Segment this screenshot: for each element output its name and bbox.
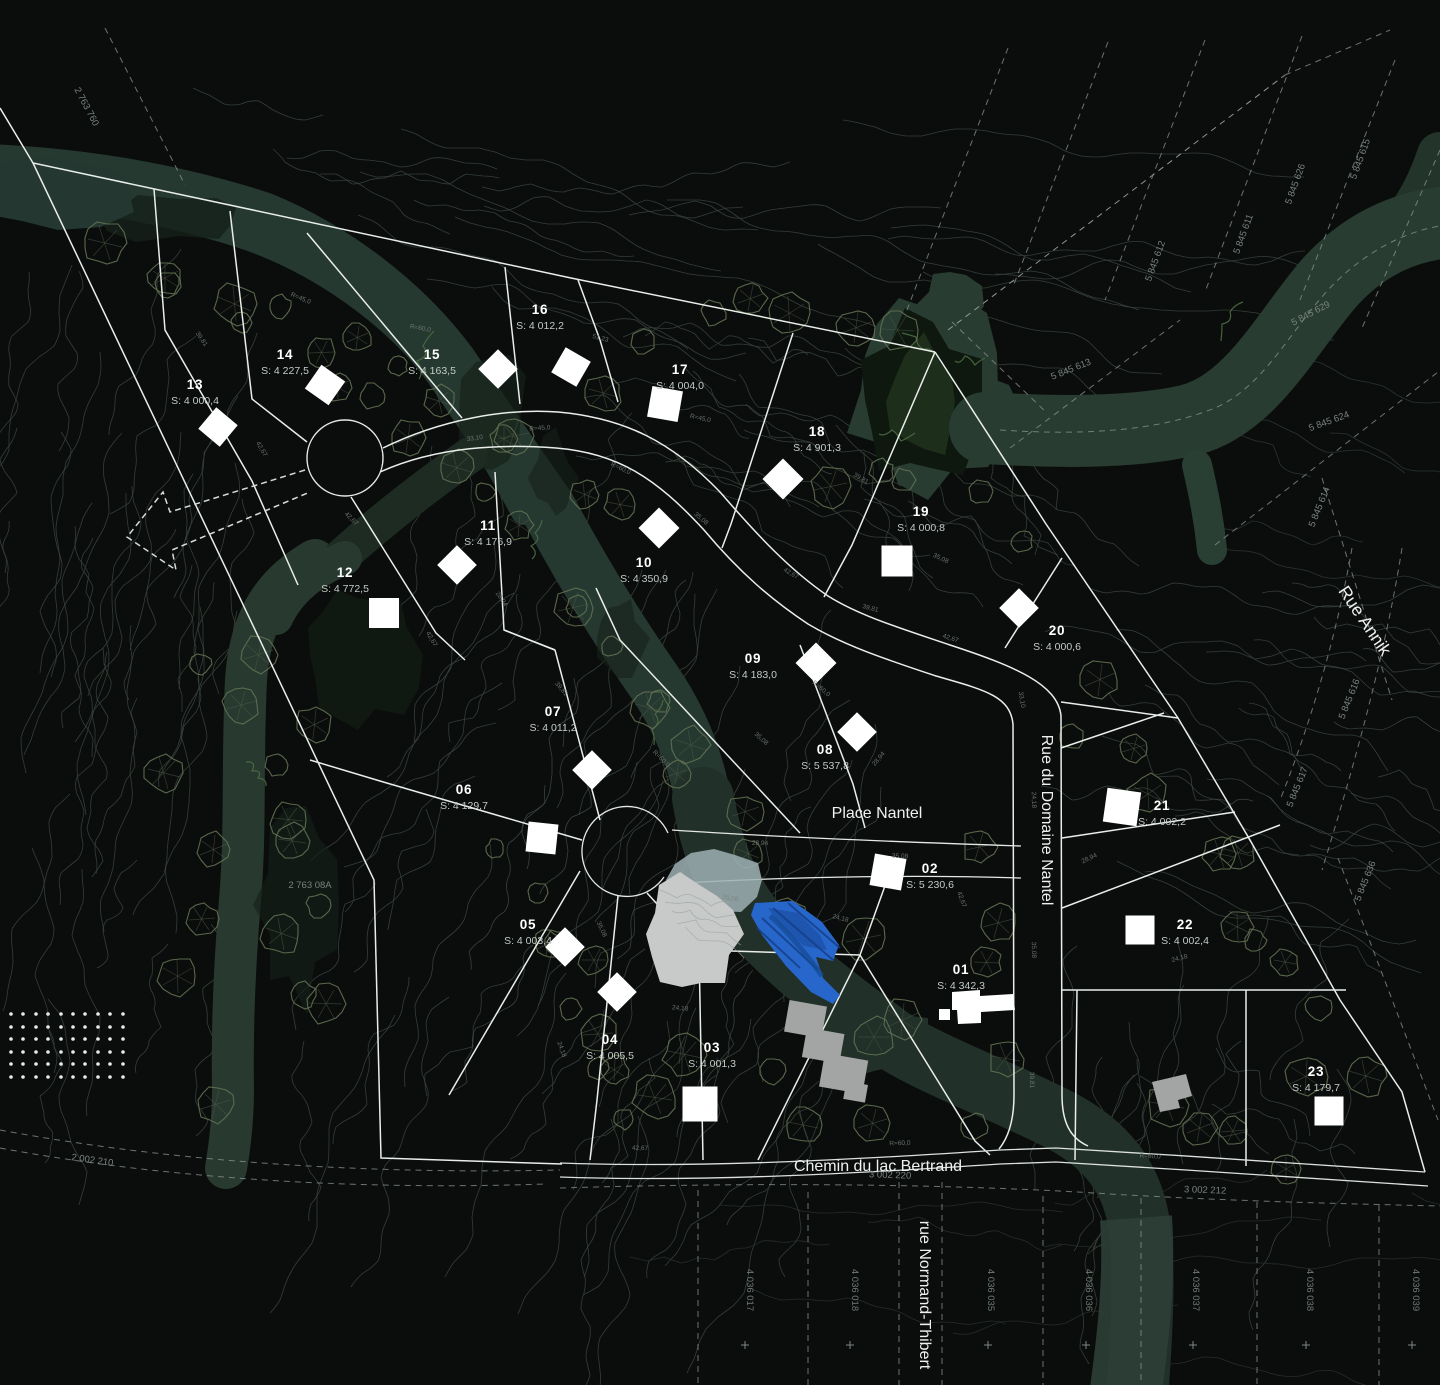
svg-text:R=60,0: R=60,0: [889, 1140, 911, 1148]
svg-text:R=45,0: R=45,0: [529, 424, 551, 432]
svg-text:S: 4 012,2: S: 4 012,2: [516, 320, 564, 332]
svg-text:S: 4 129,7: S: 4 129,7: [440, 800, 488, 812]
svg-text:07: 07: [545, 704, 562, 719]
svg-text:18: 18: [809, 424, 826, 439]
svg-text:09: 09: [745, 651, 762, 666]
svg-text:24,18: 24,18: [672, 1004, 689, 1012]
svg-text:S: 5 537,8: S: 5 537,8: [801, 760, 849, 772]
svg-text:S: 4 163,5: S: 4 163,5: [408, 365, 456, 377]
svg-text:05: 05: [520, 917, 537, 932]
svg-text:02: 02: [922, 861, 939, 876]
svg-text:4 036 036: 4 036 036: [1083, 1269, 1094, 1311]
svg-text:S: 4 011,2: S: 4 011,2: [529, 722, 576, 734]
svg-text:21: 21: [1154, 798, 1171, 813]
svg-text:4 036 037: 4 036 037: [1190, 1269, 1201, 1311]
svg-text:3 002 220: 3 002 220: [869, 1169, 912, 1181]
svg-text:S: 4 000,4: S: 4 000,4: [171, 395, 219, 407]
svg-text:19: 19: [913, 504, 930, 519]
svg-text:S: 4 002,2: S: 4 002,2: [1138, 816, 1186, 828]
svg-text:S: 4 002,4: S: 4 002,4: [1161, 935, 1209, 947]
svg-text:S: 4 000,6: S: 4 000,6: [1033, 641, 1081, 653]
svg-text:04: 04: [602, 1032, 619, 1047]
svg-text:06: 06: [456, 782, 473, 797]
svg-text:20: 20: [1049, 623, 1066, 638]
svg-text:35,08: 35,08: [1030, 942, 1038, 959]
svg-text:17: 17: [672, 362, 689, 377]
svg-text:S: 4 003,4: S: 4 003,4: [504, 935, 552, 947]
svg-text:S: 4 005,5: S: 4 005,5: [586, 1050, 634, 1062]
svg-text:rue Normand-Thibert: rue Normand-Thibert: [916, 1221, 933, 1370]
svg-text:28,94: 28,94: [752, 840, 769, 848]
svg-text:4 036 039: 4 036 039: [1410, 1269, 1421, 1311]
svg-text:Rue du Domaine Nantel: Rue du Domaine Nantel: [1038, 735, 1055, 906]
svg-text:S: 4 901,3: S: 4 901,3: [793, 442, 841, 454]
svg-text:S: 4 227,5: S: 4 227,5: [261, 365, 309, 377]
svg-text:3 002 212: 3 002 212: [1184, 1184, 1227, 1196]
svg-text:16: 16: [532, 302, 549, 317]
svg-text:35,08: 35,08: [892, 853, 909, 861]
svg-text:14: 14: [277, 347, 294, 362]
svg-text:08: 08: [817, 742, 834, 757]
svg-text:S: 4 350,9: S: 4 350,9: [620, 573, 668, 585]
svg-text:10: 10: [636, 555, 653, 570]
svg-text:23: 23: [1308, 1064, 1325, 1079]
svg-text:13: 13: [187, 377, 204, 392]
svg-text:S: 4 001,3: S: 4 001,3: [688, 1058, 736, 1070]
svg-text:4 036 018: 4 036 018: [849, 1269, 860, 1311]
svg-text:S: 4 176,9: S: 4 176,9: [464, 536, 512, 548]
svg-text:42,67: 42,67: [632, 1145, 649, 1153]
svg-text:4 036 038: 4 036 038: [1304, 1269, 1315, 1311]
svg-text:2 763 08A: 2 763 08A: [288, 880, 332, 891]
svg-text:S: 4 183,0: S: 4 183,0: [729, 669, 777, 681]
svg-text:39,81: 39,81: [1028, 1072, 1036, 1089]
svg-text:S: 5 230,6: S: 5 230,6: [906, 879, 954, 891]
svg-text:03: 03: [704, 1040, 721, 1055]
svg-text:4 036 017: 4 036 017: [744, 1269, 755, 1311]
svg-text:12: 12: [337, 565, 354, 580]
svg-text:22: 22: [1177, 917, 1194, 932]
svg-text:24,18: 24,18: [1030, 792, 1038, 809]
svg-text:S: 4 004,0: S: 4 004,0: [656, 380, 704, 392]
svg-text:4 036 035: 4 036 035: [985, 1269, 996, 1311]
svg-text:R=60,0: R=60,0: [1139, 1152, 1161, 1160]
svg-text:11: 11: [480, 518, 496, 533]
svg-text:S: 4 772,5: S: 4 772,5: [321, 583, 369, 595]
svg-text:S: 4 179,7: S: 4 179,7: [1292, 1082, 1340, 1094]
svg-text:Place Nantel: Place Nantel: [832, 805, 923, 822]
svg-text:15: 15: [424, 347, 441, 362]
svg-text:01: 01: [953, 962, 970, 977]
svg-text:S: 4 342,3: S: 4 342,3: [937, 980, 985, 992]
svg-text:S: 4 000,8: S: 4 000,8: [897, 522, 945, 534]
